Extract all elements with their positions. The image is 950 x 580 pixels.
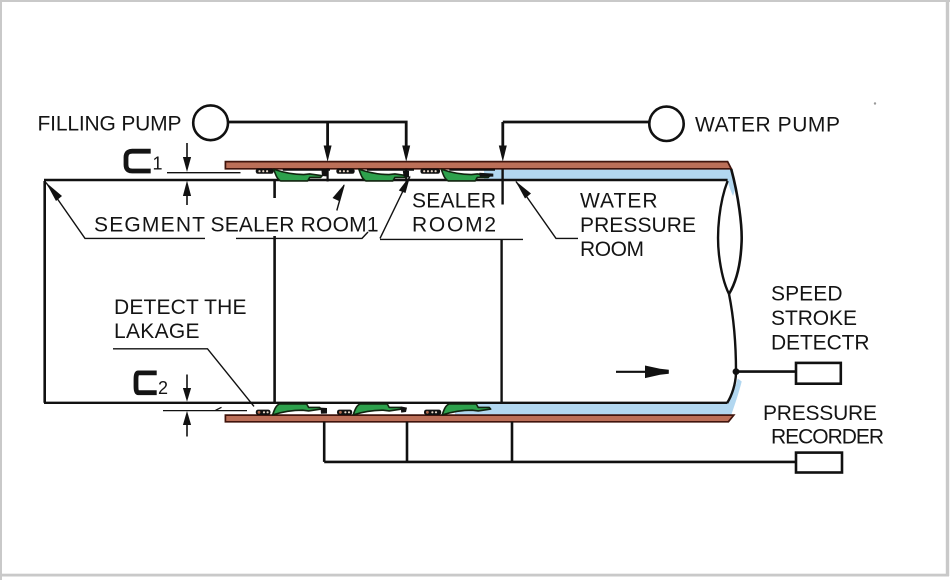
svg-text:DETECT THE: DETECT THE xyxy=(114,296,247,319)
svg-text:PRESSURE: PRESSURE xyxy=(763,402,877,425)
svg-text:RECORDER: RECORDER xyxy=(771,425,884,448)
svg-text:WATER PUMP: WATER PUMP xyxy=(695,114,840,137)
svg-text:WATER: WATER xyxy=(580,189,658,212)
svg-text:DETECTR: DETECTR xyxy=(771,331,870,354)
svg-text:FILLING PUMP: FILLING PUMP xyxy=(38,112,182,135)
svg-text:SPEED: SPEED xyxy=(771,283,843,306)
svg-text:1: 1 xyxy=(153,153,163,173)
svg-text:2: 2 xyxy=(158,378,168,398)
svg-text:PRESSURE: PRESSURE xyxy=(580,214,696,237)
svg-text:SEALER: SEALER xyxy=(412,190,496,213)
svg-text:ROOM2: ROOM2 xyxy=(412,214,496,237)
svg-text:SEGMENT: SEGMENT xyxy=(94,214,205,237)
svg-text:LAKAGE: LAKAGE xyxy=(114,320,200,343)
svg-text:STROKE: STROKE xyxy=(771,307,857,330)
svg-text:SEALER ROOM1: SEALER ROOM1 xyxy=(211,214,379,237)
svg-text:ROOM: ROOM xyxy=(580,238,644,261)
